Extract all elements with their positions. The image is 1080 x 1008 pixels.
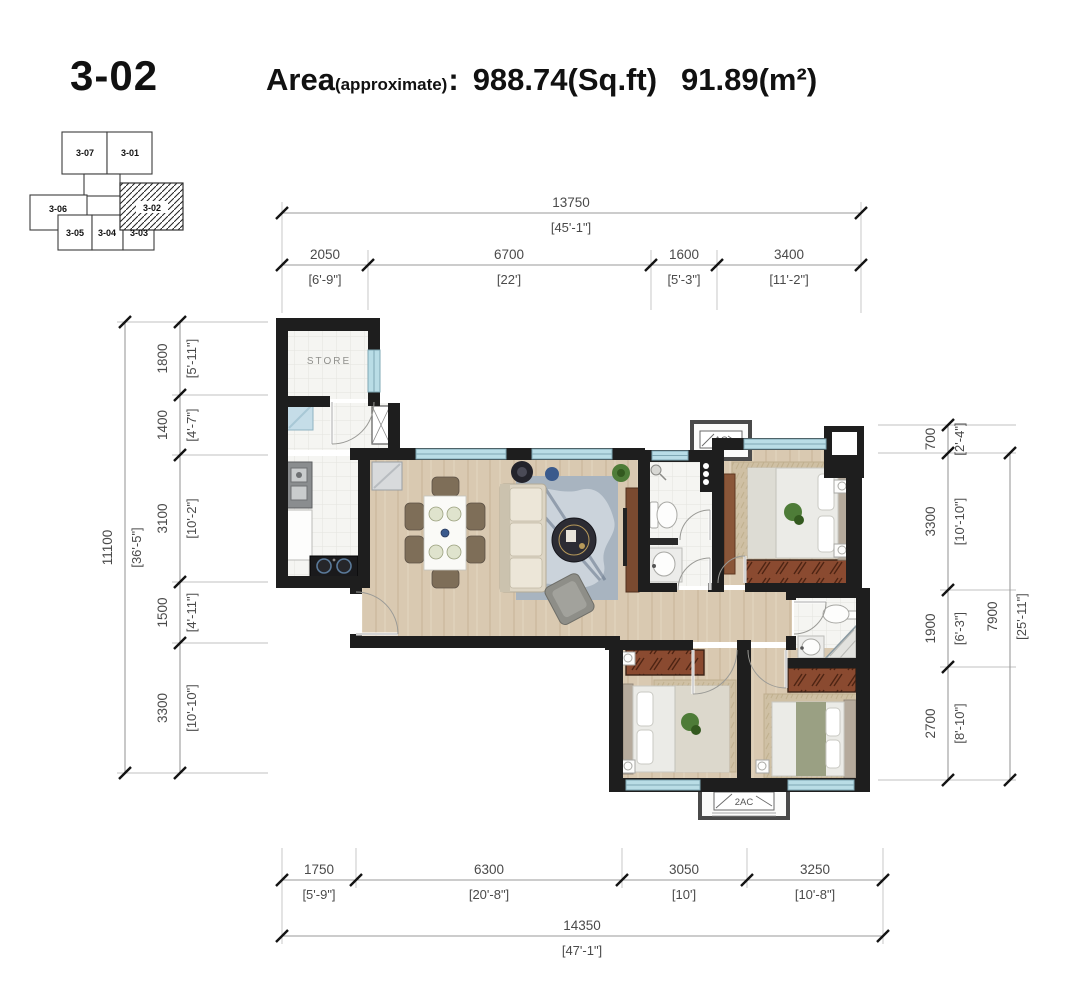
- dim-left-seg2-ft: [4'-7"]: [184, 408, 199, 441]
- dim-left-seg2-mm: 1400: [155, 410, 170, 440]
- dim-right-total-ft: [25'-11"]: [1014, 593, 1029, 640]
- bedroom3-bed: [772, 700, 856, 778]
- plan-drawing: 3-07 3-01 3-06 3-05 3-04 3-03 3-02: [0, 0, 1080, 1008]
- dim-top-seg2-ft: [22']: [497, 272, 521, 287]
- bedroom1-wardrobe: [746, 560, 848, 585]
- dim-right-seg2-ft: [10'-10"]: [952, 498, 967, 546]
- dim-left-total-mm: 11100: [100, 530, 115, 566]
- dim-top-seg2-mm: 6700: [494, 247, 524, 262]
- key-plan-label-3-02: 3-02: [143, 203, 161, 213]
- faucet: [296, 472, 302, 478]
- dimensions-top: 13750 [45'-1"] 2050 [6'-9"] 6700 [22'] 1…: [276, 195, 867, 313]
- basin-2: [798, 636, 824, 658]
- sink-bowl-2: [291, 486, 307, 500]
- dim-bot-seg2-mm: 6300: [474, 862, 504, 877]
- window-living-1: [416, 449, 506, 459]
- dim-bot-seg1-ft: [5'-9"]: [302, 887, 335, 902]
- window-bathroom1: [652, 451, 688, 460]
- dim-left-seg4-mm: 1500: [155, 597, 170, 627]
- dim-left-seg4-ft: [4'-11"]: [184, 593, 199, 632]
- bedroom3-wardrobe: [788, 668, 856, 692]
- dim-left-seg5-ft: [10'-10"]: [184, 684, 199, 732]
- bath-shelf: [700, 460, 712, 492]
- window-bedroom2: [626, 780, 700, 790]
- corridor-floor: [600, 590, 792, 642]
- dim-bot-seg4-ft: [10'-8"]: [795, 887, 835, 902]
- dim-right-seg1-mm: 700: [923, 428, 938, 451]
- key-plan-label-3-03: 3-03: [130, 228, 148, 238]
- dimensions-right: 700 [2'-4"] 3300 [10'-10"] 1900 [6'-3"] …: [878, 419, 1029, 786]
- tv: [623, 508, 627, 566]
- dim-top-total-mm: 13750: [552, 195, 590, 210]
- dimensions-bottom: 1750 [5'-9"] 6300 [20'-8"] 3050 [10'] 32…: [276, 848, 889, 958]
- ac2-label: 2AC: [735, 797, 754, 808]
- dim-left-seg1-ft: [5'-11"]: [184, 339, 199, 378]
- dim-top-seg1-ft: [6'-9"]: [308, 272, 341, 287]
- key-plan-label-3-01: 3-01: [121, 148, 139, 158]
- dim-right-total-mm: 7900: [985, 601, 1000, 631]
- key-plan-label-3-04: 3-04: [98, 228, 116, 238]
- stove: [310, 556, 358, 577]
- dim-right-seg1-ft: [2'-4"]: [952, 422, 967, 455]
- basin-1: [648, 548, 682, 582]
- dim-bot-seg4-mm: 3250: [800, 862, 830, 877]
- key-plan-label-3-07: 3-07: [76, 148, 94, 158]
- dim-right-seg3-mm: 1900: [923, 613, 938, 643]
- floor-plan-sheet: 3-02 Area (approximate) : 988.74(Sq.ft) …: [0, 0, 1080, 1008]
- fridge: [372, 462, 402, 490]
- sofa: [500, 484, 546, 592]
- dim-top-seg3-ft: [5'-3"]: [667, 272, 700, 287]
- dim-top-seg4-mm: 3400: [774, 247, 804, 262]
- duct-shaft: [372, 406, 390, 444]
- dim-bot-seg3-mm: 3050: [669, 862, 699, 877]
- toilet-1: [650, 502, 677, 528]
- dim-bot-total-ft: [47'-1"]: [562, 943, 602, 958]
- dim-top-total-ft: [45'-1"]: [551, 220, 591, 235]
- dim-bot-seg3-ft: [10']: [672, 887, 696, 902]
- bathroom1-divider-wall: [650, 538, 678, 545]
- tv-console: [626, 488, 639, 592]
- dim-left-seg3-ft: [10'-2"]: [184, 498, 199, 538]
- kitchen-counter: [286, 510, 312, 560]
- key-plan: 3-07 3-01 3-06 3-05 3-04 3-03 3-02: [30, 132, 183, 250]
- plant-living-center: [617, 469, 625, 477]
- dim-bot-seg1-mm: 1750: [304, 862, 334, 877]
- dim-right-seg4-ft: [8'-10"]: [952, 703, 967, 743]
- dim-bot-seg2-ft: [20'-8"]: [469, 887, 509, 902]
- dim-left-seg5-mm: 3300: [155, 693, 170, 723]
- bedroom2-bed: [623, 684, 729, 774]
- window-store: [368, 350, 380, 392]
- dim-left-total-ft: [36'-5"]: [129, 527, 144, 567]
- corner-pillar: [824, 426, 864, 478]
- window-bedroom3: [788, 780, 854, 790]
- dimensions-left: 11100 [36'-5"] 1800 [5'-11"] 1400 [4'-7"…: [100, 316, 268, 779]
- dim-right-seg4-mm: 2700: [923, 708, 938, 738]
- dim-top-seg1-mm: 2050: [310, 247, 340, 262]
- dim-top-seg4-ft: [11'-2"]: [769, 272, 808, 287]
- key-plan-label-3-05: 3-05: [66, 228, 84, 238]
- coffee-table: [552, 518, 596, 562]
- vase-decor: [545, 467, 559, 481]
- dim-right-seg3-ft: [6'-3"]: [952, 612, 967, 645]
- window-living-2: [532, 449, 612, 459]
- dim-left-seg1-mm: 1800: [155, 343, 170, 373]
- window-bedroom1: [744, 439, 826, 449]
- store-room-label: STORE: [307, 356, 351, 367]
- dim-right-seg2-mm: 3300: [923, 506, 938, 536]
- dim-left-seg3-mm: 3100: [155, 503, 170, 533]
- floor-lamp-inner: [517, 467, 527, 477]
- key-plan-core: [84, 174, 120, 196]
- dim-bot-total-mm: 14350: [563, 918, 601, 933]
- key-plan-label-3-06: 3-06: [49, 204, 67, 214]
- dim-top-seg3-mm: 1600: [669, 247, 699, 262]
